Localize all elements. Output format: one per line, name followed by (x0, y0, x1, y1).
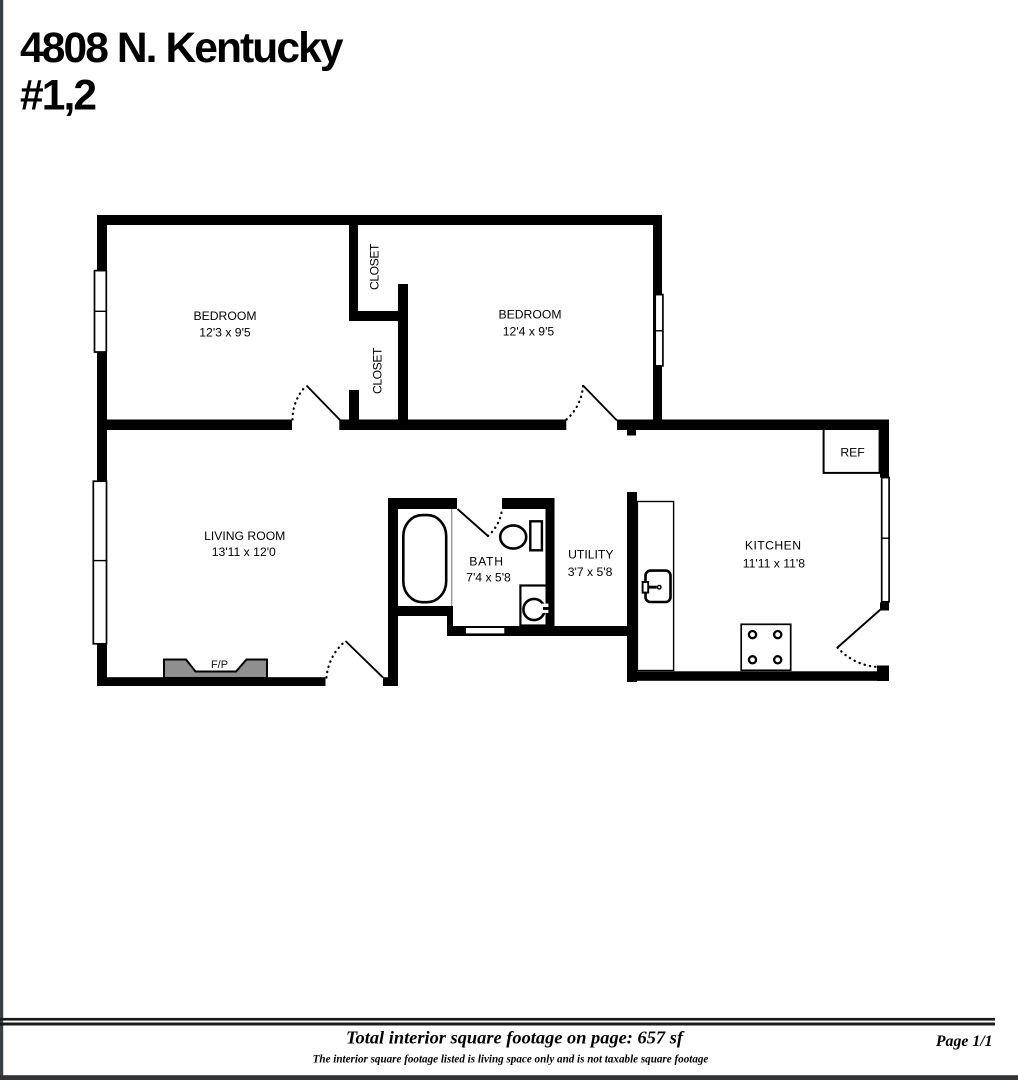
svg-text:CLOSET: CLOSET (371, 347, 385, 394)
svg-text:LIVING ROOM: LIVING ROOM (204, 529, 285, 543)
svg-text:BEDROOM: BEDROOM (194, 309, 257, 323)
svg-text:The interior square footage li: The interior square footage listed is li… (313, 1054, 709, 1066)
svg-text:F/P: F/P (211, 659, 228, 671)
svg-text:#1,2: #1,2 (20, 73, 95, 120)
svg-text:Page 1/1: Page 1/1 (936, 1033, 993, 1050)
svg-text:3'7 x 5'8: 3'7 x 5'8 (568, 565, 613, 579)
svg-text:12'4 x 9'5: 12'4 x 9'5 (503, 324, 555, 338)
svg-text:CLOSET: CLOSET (368, 243, 382, 290)
svg-text:12'3 x 9'5: 12'3 x 9'5 (199, 326, 251, 340)
svg-text:KITCHEN: KITCHEN (745, 539, 802, 553)
svg-text:4808 N. Kentucky: 4808 N. Kentucky (20, 25, 344, 72)
svg-text:UTILITY: UTILITY (568, 548, 613, 562)
svg-text:7'4 x 5'8: 7'4 x 5'8 (466, 571, 511, 585)
svg-text:Total interior square footage: Total interior square footage on page: 6… (346, 1028, 685, 1048)
svg-text:REF: REF (840, 446, 864, 460)
svg-text:13'11 x 12'0: 13'11 x 12'0 (212, 545, 276, 559)
svg-text:11'11 x 11'8: 11'11 x 11'8 (743, 557, 805, 571)
svg-text:BEDROOM: BEDROOM (499, 308, 562, 322)
svg-text:BATH: BATH (469, 555, 503, 569)
